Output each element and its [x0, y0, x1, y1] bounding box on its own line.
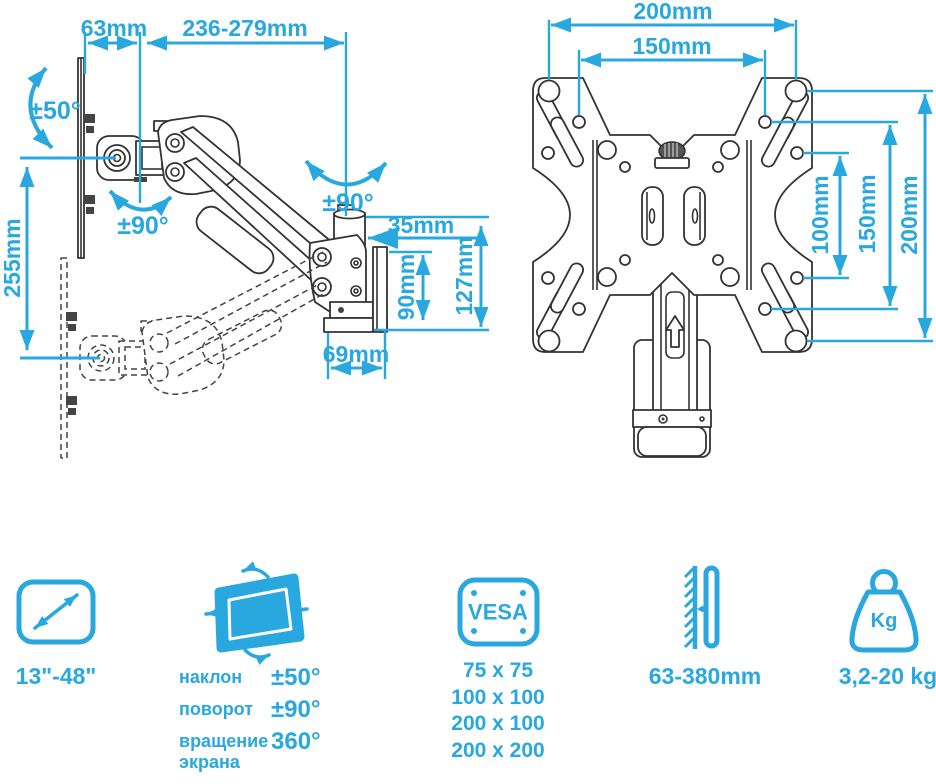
- dim-extension: 236-279mm: [147, 15, 344, 43]
- dim-height-between: 255mm: [0, 158, 116, 358]
- movement-rotation-label: вращение экрана: [179, 731, 271, 773]
- movement-tilt-label: наклон: [179, 667, 271, 688]
- dim-hole-width-outer: 200mm: [551, 0, 794, 25]
- wall-distance-label: 63-380mm: [641, 663, 769, 690]
- dim-plate-height: 90mm: [389, 252, 432, 320]
- vesa-icon: VESA: [460, 580, 537, 644]
- dim-total-head-height-label: 127mm: [451, 236, 477, 315]
- tilt-swivel-icon: [206, 569, 307, 657]
- movement-specs: наклон ±50° поворот ±90° вращение экрана…: [179, 667, 349, 784]
- elbow-bracket-lowered: [142, 316, 224, 394]
- movement-tilt-value: ±50°: [271, 667, 320, 688]
- dim-swivel-elbow-label: ±90°: [117, 212, 169, 240]
- mount-spec-sheet: 63mm 236-279mm ±50° ±90° ±90° 255mm 35mm: [0, 0, 936, 784]
- screen-size-icon: [19, 582, 93, 642]
- dim-hole-height-100: 100mm: [807, 156, 840, 275]
- dim-hole-width-outer-label: 200mm: [633, 0, 712, 24]
- dim-tilt-label: ±50°: [29, 97, 81, 125]
- dim-wall-offset-label: 63mm: [81, 15, 147, 41]
- weight-icon-label: Kg: [871, 610, 898, 632]
- dim-tilt: ±50°: [29, 68, 81, 148]
- vesa-hole: [539, 81, 560, 102]
- dim-wall-offset: 63mm: [81, 15, 147, 43]
- dim-hole-height-100-label: 100mm: [807, 175, 833, 254]
- movement-row-rotation: вращение экрана 360°: [179, 731, 349, 773]
- max-weight-label: 3,2-20 kg: [829, 663, 936, 690]
- dim-height-between-label: 255mm: [0, 218, 25, 297]
- vesa-bar: [373, 247, 387, 331]
- rear-view-drawing: [533, 78, 812, 457]
- weight-icon: Kg: [852, 572, 916, 651]
- vesa-size-item: 200 x 200: [436, 738, 560, 765]
- dim-base-depth: 69mm: [323, 331, 389, 379]
- dim-hole-height-200: 200mm: [896, 94, 925, 338]
- vesa-size-item: 100 x 100: [436, 685, 560, 712]
- dim-plate-height-label: 90mm: [393, 254, 419, 320]
- movement-swivel-label: поворот: [179, 699, 271, 720]
- vesa-icon-label: VESA: [468, 600, 528, 625]
- dim-hole-height-200-label: 200mm: [896, 175, 922, 254]
- adjust-slot: [642, 187, 663, 245]
- dim-extension-label: 236-279mm: [182, 15, 307, 41]
- vesa-size-item: 200 x 100: [436, 711, 560, 738]
- movement-swivel-value: ±90°: [271, 699, 320, 720]
- vesa-sizes-list: 75 x 75 100 x 100 200 x 100 200 x 200: [436, 658, 560, 764]
- side-view-drawing: [61, 58, 387, 458]
- movement-row-tilt: наклон ±50°: [179, 667, 349, 688]
- dim-hole-width-inner: 150mm: [581, 33, 763, 60]
- screen-size-label: 13"-48": [0, 663, 112, 690]
- spec-icons: VESA Kg: [19, 566, 916, 657]
- wall-distance-icon: [685, 566, 717, 649]
- movement-rotation-value: 360°: [271, 731, 321, 752]
- dim-hole-height-150: 150mm: [854, 125, 890, 306]
- dim-hole-height-150-label: 150mm: [854, 174, 880, 253]
- dim-swivel-head-label: ±90°: [322, 189, 374, 217]
- dim-base-depth-label: 69mm: [323, 341, 389, 367]
- dim-hole-width-inner-label: 150mm: [632, 33, 711, 59]
- vesa-size-item: 75 x 75: [436, 658, 560, 685]
- movement-row-swivel: поворот ±90°: [179, 699, 349, 720]
- wall-screw: [84, 114, 95, 123]
